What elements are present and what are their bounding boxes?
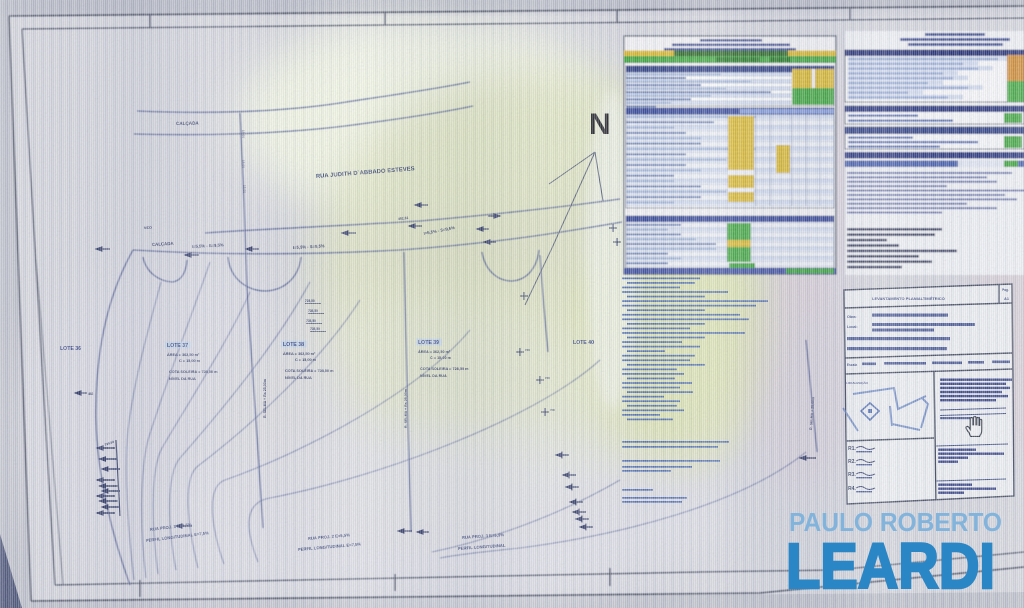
svg-text:LEARDI: LEARDI [786, 530, 995, 602]
